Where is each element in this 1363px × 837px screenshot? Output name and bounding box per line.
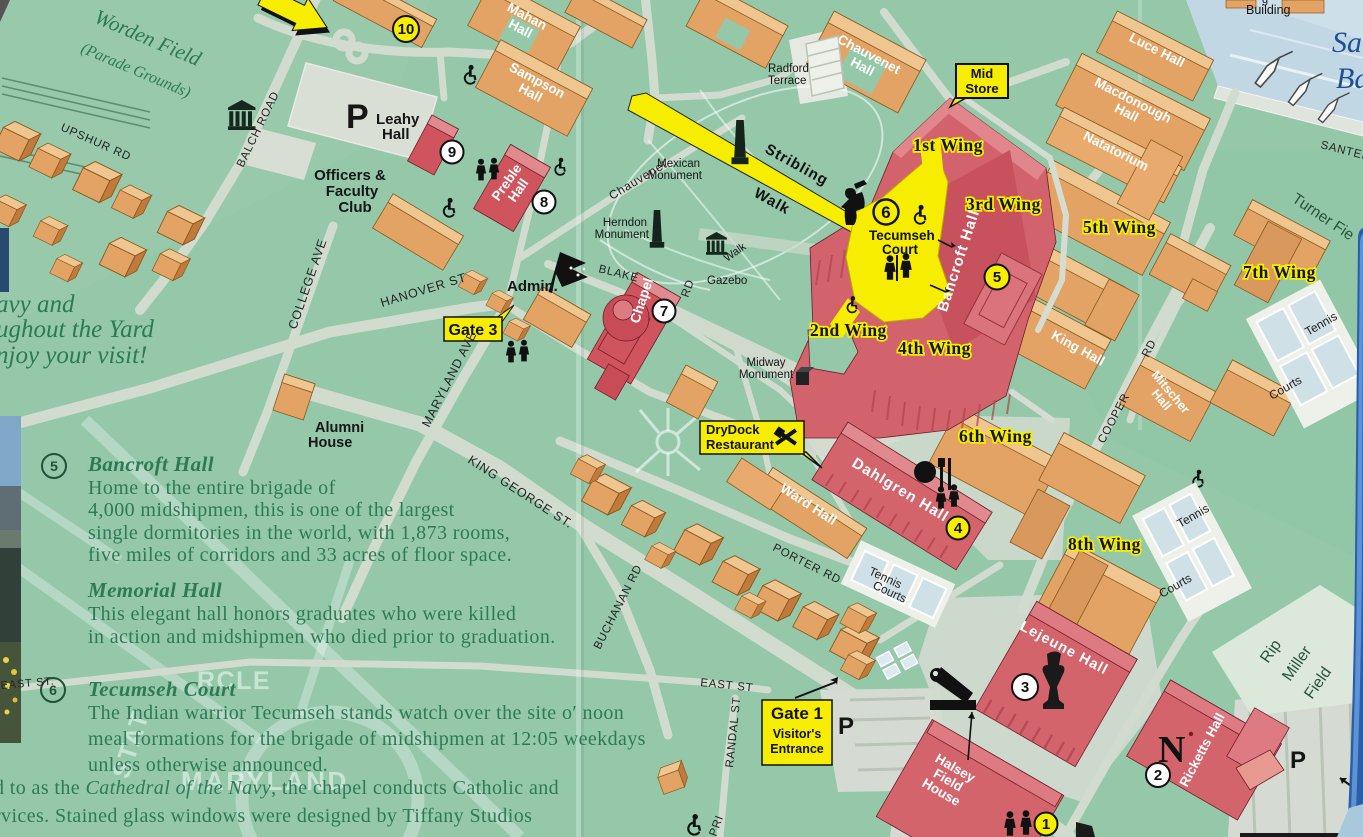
svg-text:d to as the Cathedral of the N: d to as the Cathedral of the Navy, the c…	[0, 777, 559, 799]
svg-text:Monument: Monument	[595, 229, 650, 241]
svg-text:in action and midshipmen who d: in action and midshipmen who died prior …	[88, 626, 556, 648]
svg-text:Hall: Hall	[382, 126, 410, 143]
svg-text:7th Wing: 7th Wing	[1243, 262, 1316, 282]
svg-text:The Indian warrior Tecumseh s: The Indian warrior Tecumseh stands watch…	[88, 702, 624, 724]
svg-text:rvices. Stained glass windows: rvices. Stained glass windows were desig…	[0, 805, 532, 827]
svg-text:Monument: Monument	[739, 369, 794, 381]
svg-text:7: 7	[660, 303, 668, 320]
svg-text:Visitor's: Visitor's	[773, 727, 822, 741]
svg-text:5: 5	[50, 458, 58, 474]
svg-text:5: 5	[993, 269, 1001, 286]
svg-text:Club: Club	[338, 199, 371, 216]
svg-text:single dormitories in the worl: single dormitories in the world, with 1,…	[88, 522, 510, 544]
svg-text:Gazebo: Gazebo	[707, 275, 747, 287]
svg-text:Building: Building	[1246, 3, 1291, 17]
svg-text:2nd Wing: 2nd Wing	[810, 320, 887, 340]
svg-text:2: 2	[1154, 767, 1162, 784]
svg-text:unless otherwise announced.: unless otherwise announced.	[88, 754, 328, 776]
svg-text:Ba: Ba	[1336, 62, 1363, 95]
svg-text:Court: Court	[882, 242, 918, 257]
svg-text:meal formations for the brigad: meal formations for the brigade of midsh…	[88, 728, 646, 750]
svg-text:Tecumseh Court: Tecumseh Court	[88, 677, 237, 701]
svg-text:4: 4	[954, 520, 963, 537]
svg-text:Admin.: Admin.	[507, 278, 558, 295]
svg-text:4,000 midshipmen, this is one: 4,000 midshipmen, this is one of the lar…	[88, 499, 455, 521]
svg-text:Radford: Radford	[768, 63, 809, 75]
svg-text:1: 1	[1042, 816, 1050, 833]
svg-text:4th Wing: 4th Wing	[898, 338, 971, 358]
svg-text:This elegant hall honors gradu: This elegant hall honors graduates who w…	[88, 603, 516, 625]
svg-text:8: 8	[540, 194, 548, 211]
svg-text:Gate 1: Gate 1	[771, 704, 823, 723]
svg-text:6th Wing: 6th Wing	[959, 426, 1032, 446]
svg-text:njoy your visit!: njoy your visit!	[0, 342, 147, 369]
svg-text:3: 3	[1021, 679, 1029, 696]
svg-text:Faculty: Faculty	[326, 183, 379, 200]
svg-text:Memorial Hall: Memorial Hall	[87, 578, 222, 602]
svg-text:Home to the entire brigade of: Home to the entire brigade of	[88, 477, 336, 499]
svg-text:Store: Store	[965, 81, 998, 96]
svg-text:1st Wing: 1st Wing	[913, 135, 983, 155]
svg-text:Sa: Sa	[1332, 26, 1362, 59]
svg-text:9: 9	[448, 144, 456, 161]
svg-text:Terrace: Terrace	[768, 75, 806, 87]
svg-text:P: P	[346, 98, 369, 136]
svg-text:avy and: avy and	[0, 291, 75, 318]
svg-text:Bancroft Hall: Bancroft Hall	[87, 452, 214, 476]
svg-text:DryDock: DryDock	[706, 422, 760, 437]
svg-text:6: 6	[881, 203, 890, 222]
svg-text:Alumni: Alumni	[315, 420, 364, 436]
svg-text:House: House	[308, 435, 352, 451]
svg-text:5th Wing: 5th Wing	[1083, 217, 1156, 237]
svg-text:Officers &: Officers &	[314, 167, 386, 184]
svg-text:P: P	[838, 713, 854, 740]
svg-text:P: P	[1290, 747, 1306, 774]
svg-text:Entrance: Entrance	[770, 742, 824, 756]
svg-text:10: 10	[398, 21, 415, 38]
svg-text:Restaurant: Restaurant	[706, 437, 775, 452]
svg-text:Mid: Mid	[971, 66, 993, 81]
svg-text:five miles of corridors and 33: five miles of corridors and 33 acres of …	[88, 544, 512, 566]
svg-text:ughout the Yard: ughout the Yard	[0, 316, 154, 343]
svg-text:Tecumseh: Tecumseh	[869, 228, 935, 243]
svg-text:g: g	[1262, 0, 1268, 6]
svg-text:8th Wing: 8th Wing	[1068, 534, 1141, 554]
svg-text:Herndon: Herndon	[603, 217, 647, 229]
svg-text:Midway: Midway	[747, 357, 786, 369]
